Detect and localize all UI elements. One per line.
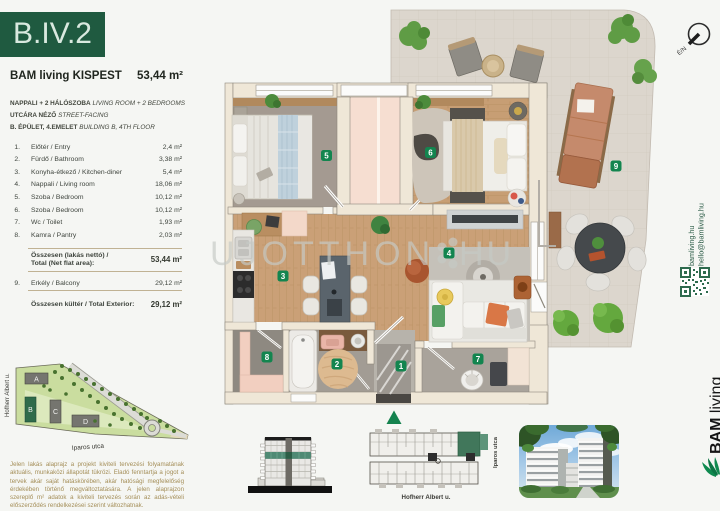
svg-text:9: 9 bbox=[614, 162, 619, 171]
svg-text:Iparos utca: Iparos utca bbox=[493, 436, 499, 468]
svg-text:3: 3 bbox=[281, 272, 286, 281]
svg-text:5: 5 bbox=[324, 151, 329, 160]
svg-text:B: B bbox=[28, 407, 33, 414]
svg-text:hello@bamliving.hu: hello@bamliving.hu bbox=[697, 203, 706, 266]
svg-text:2: 2 bbox=[335, 360, 340, 369]
svg-text:8: 8 bbox=[265, 353, 270, 362]
svg-text:HU: HU bbox=[459, 235, 514, 273]
svg-text:Hofherr Albert u.: Hofherr Albert u. bbox=[402, 494, 451, 501]
svg-text:Iparos utca: Iparos utca bbox=[72, 443, 105, 452]
svg-text:1: 1 bbox=[399, 362, 404, 371]
svg-text:6: 6 bbox=[428, 148, 433, 157]
svg-text:BAM living: BAM living bbox=[708, 377, 720, 454]
svg-text:4: 4 bbox=[447, 249, 452, 258]
svg-text:C: C bbox=[53, 409, 58, 416]
svg-text:D: D bbox=[83, 419, 88, 426]
svg-text:É/N: É/N bbox=[676, 45, 688, 57]
svg-text:Hofherr Albert u.: Hofherr Albert u. bbox=[5, 373, 11, 417]
svg-text:bamliving.hu: bamliving.hu bbox=[687, 226, 696, 266]
svg-text:UJOTTHON: UJOTTHON bbox=[210, 235, 435, 273]
svg-text:7: 7 bbox=[476, 355, 481, 364]
svg-text:A: A bbox=[34, 377, 39, 384]
